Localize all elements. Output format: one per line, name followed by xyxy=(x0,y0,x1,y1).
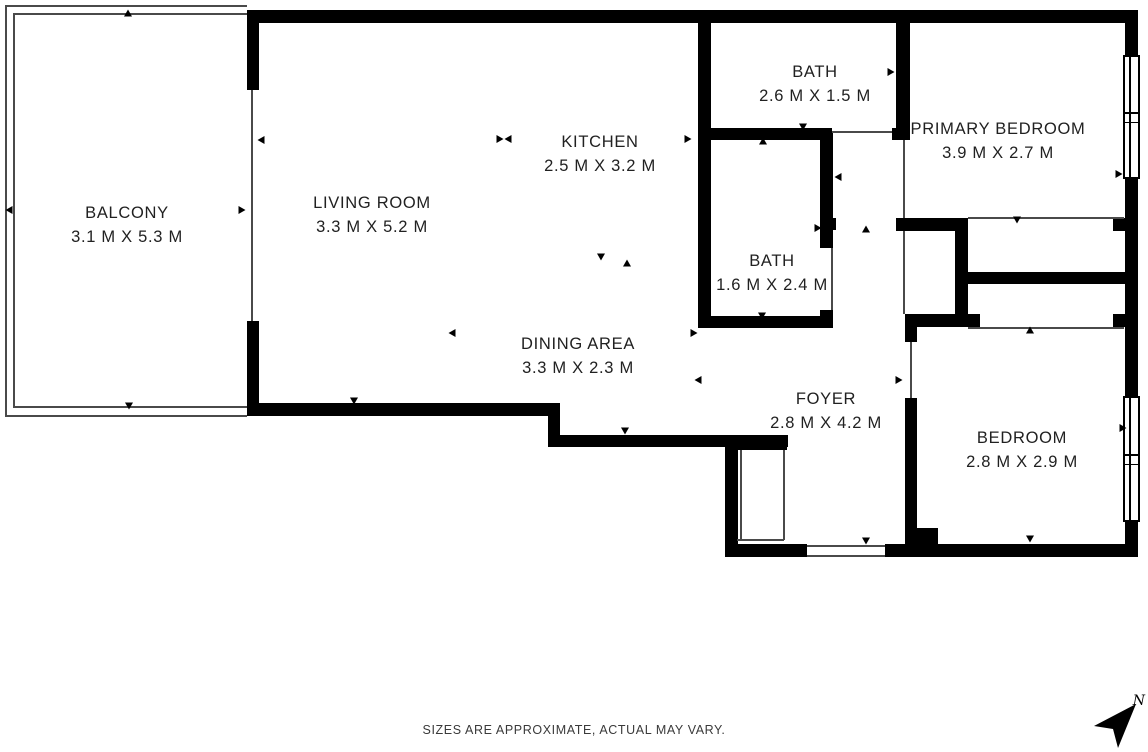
wall-segment xyxy=(1113,218,1125,231)
room-name: BATH xyxy=(759,60,871,84)
window-pane-line xyxy=(1129,398,1131,520)
north-label: N xyxy=(1133,693,1145,709)
up-arrow-icon xyxy=(801,15,809,22)
wall-segment xyxy=(725,544,807,557)
left-arrow-icon xyxy=(505,135,512,143)
room-label: KITCHEN2.5 M X 3.2 M xyxy=(544,130,656,178)
room-dimensions: 1.6 M X 2.4 M xyxy=(716,273,828,297)
wall-segment xyxy=(820,310,833,328)
room-name: LIVING ROOM xyxy=(313,191,431,215)
wall-segment xyxy=(247,321,259,416)
up-arrow-icon xyxy=(124,10,132,17)
room-dimensions: 3.3 M X 2.3 M xyxy=(521,356,635,380)
wall-segment xyxy=(820,133,833,248)
room-dimensions: 3.9 M X 2.7 M xyxy=(911,141,1086,165)
wall-segment xyxy=(1125,177,1138,398)
window-mullion-line xyxy=(1125,464,1138,466)
room-label: LIVING ROOM3.3 M X 5.2 M xyxy=(313,191,431,239)
wall-segment xyxy=(247,403,560,416)
wall-segment xyxy=(247,10,1138,23)
room-dimensions: 3.3 M X 5.2 M xyxy=(313,215,431,239)
right-arrow-icon xyxy=(691,329,698,337)
room-dimensions: 2.6 M X 1.5 M xyxy=(759,84,871,108)
room-dimensions: 2.5 M X 3.2 M xyxy=(544,154,656,178)
opening-line xyxy=(831,248,833,310)
down-arrow-icon xyxy=(125,403,133,410)
right-arrow-icon xyxy=(685,135,692,143)
down-arrow-icon xyxy=(758,313,766,320)
left-arrow-icon xyxy=(702,68,709,76)
wall-segment xyxy=(247,10,259,90)
disclaimer-text: SIZES ARE APPROXIMATE, ACTUAL MAY VARY. xyxy=(0,723,1148,737)
up-arrow-icon xyxy=(908,431,916,438)
up-arrow-icon xyxy=(759,138,767,145)
right-arrow-icon xyxy=(888,68,895,76)
left-arrow-icon xyxy=(702,224,709,232)
opening-line xyxy=(832,131,892,133)
wall-segment xyxy=(1113,314,1125,327)
right-arrow-icon xyxy=(1116,170,1123,178)
room-label: BEDROOM2.8 M X 2.9 M xyxy=(966,426,1078,474)
up-arrow-icon xyxy=(862,226,870,233)
wall-segment xyxy=(896,10,910,138)
room-name: KITCHEN xyxy=(544,130,656,154)
room-label: PRIMARY BEDROOM3.9 M X 2.7 M xyxy=(911,117,1086,165)
opening-line xyxy=(910,342,912,398)
window-pane-line xyxy=(1129,57,1131,177)
left-arrow-icon xyxy=(695,376,702,384)
room-label: BATH2.6 M X 1.5 M xyxy=(759,60,871,108)
room-name: BATH xyxy=(716,249,828,273)
window-mullion-line xyxy=(1125,122,1138,124)
window-icon xyxy=(1123,55,1140,179)
room-name: BALCONY xyxy=(71,201,183,225)
down-arrow-icon xyxy=(1013,217,1021,224)
room-name: DINING AREA xyxy=(521,332,635,356)
room-label: DINING AREA3.3 M X 2.3 M xyxy=(521,332,635,380)
wall-segment xyxy=(1125,10,1138,57)
room-name: BEDROOM xyxy=(966,426,1078,450)
down-arrow-icon xyxy=(621,428,629,435)
opening-line xyxy=(903,140,905,218)
window-mullion-line xyxy=(1125,454,1138,456)
opening-line xyxy=(783,450,785,540)
room-label: BATH1.6 M X 2.4 M xyxy=(716,249,828,297)
wall-segment xyxy=(698,10,711,328)
left-arrow-icon xyxy=(449,329,456,337)
down-arrow-icon xyxy=(597,254,605,261)
left-arrow-icon xyxy=(6,206,13,214)
down-arrow-icon xyxy=(1026,536,1034,543)
opening-line xyxy=(737,539,784,541)
wall-segment xyxy=(737,438,787,450)
opening-line xyxy=(807,545,885,547)
window-icon xyxy=(1123,396,1140,522)
room-dimensions: 2.8 M X 2.9 M xyxy=(966,450,1078,474)
wall-segment xyxy=(1125,520,1138,557)
wall-segment xyxy=(905,398,917,544)
right-arrow-icon xyxy=(1120,424,1127,432)
room-name: FOYER xyxy=(770,387,882,411)
opening-line xyxy=(903,231,905,314)
room-label: BALCONY3.1 M X 5.3 M xyxy=(71,201,183,249)
opening-line xyxy=(251,90,253,321)
up-arrow-icon xyxy=(1013,15,1021,22)
window-mullion-line xyxy=(1125,112,1138,114)
room-dimensions: 3.1 M X 5.3 M xyxy=(71,225,183,249)
opening-line xyxy=(968,327,1124,329)
opening-line xyxy=(5,5,247,7)
up-arrow-icon xyxy=(351,13,359,20)
down-arrow-icon xyxy=(350,398,358,405)
left-arrow-icon xyxy=(258,136,265,144)
opening-line xyxy=(740,450,742,540)
wall-segment xyxy=(968,272,1125,284)
opening-line xyxy=(13,13,15,408)
room-name: PRIMARY BEDROOM xyxy=(911,117,1086,141)
down-arrow-icon xyxy=(862,538,870,545)
wall-segment xyxy=(955,218,968,327)
room-dimensions: 2.8 M X 4.2 M xyxy=(770,411,882,435)
room-label: FOYER2.8 M X 4.2 M xyxy=(770,387,882,435)
up-arrow-icon xyxy=(1026,327,1034,334)
opening-line xyxy=(968,217,1124,219)
right-arrow-icon xyxy=(896,376,903,384)
right-arrow-icon xyxy=(497,135,504,143)
opening-line xyxy=(807,555,885,557)
opening-line xyxy=(5,415,247,417)
wall-segment xyxy=(905,314,917,342)
right-arrow-icon xyxy=(239,206,246,214)
floor-plan-canvas: BALCONY3.1 M X 5.3 MLIVING ROOM3.3 M X 5… xyxy=(0,0,1148,752)
left-arrow-icon xyxy=(835,173,842,181)
down-arrow-icon xyxy=(799,124,807,131)
wall-segment xyxy=(885,544,1138,557)
up-arrow-icon xyxy=(623,260,631,267)
north-arrow: N xyxy=(1090,696,1146,752)
up-arrow-icon xyxy=(596,13,604,20)
right-arrow-icon xyxy=(815,224,822,232)
wall-segment xyxy=(826,218,836,230)
